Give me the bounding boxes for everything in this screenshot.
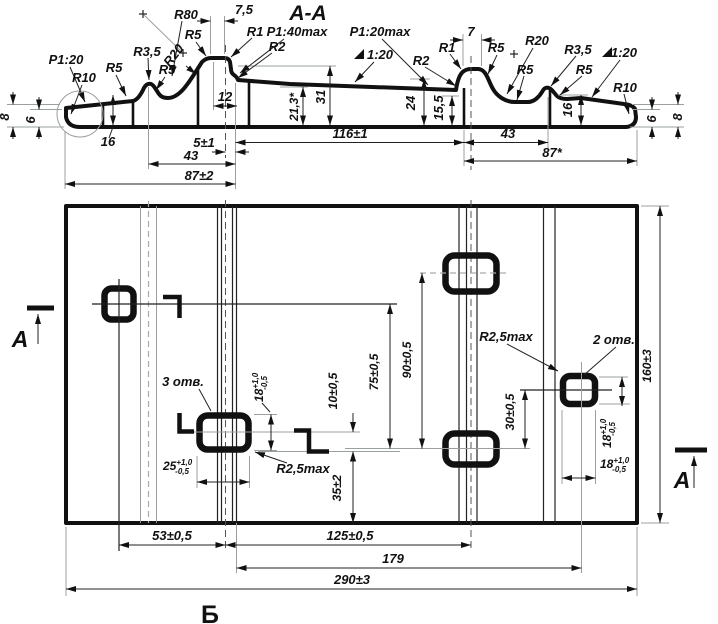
rail-plate-drawing: A-AR807,5R5R1P1:40maxR2R3,5R20R5R5P1:20R… bbox=[0, 0, 718, 624]
dim-18-tol-right-h: 18+1,0-0,5 bbox=[600, 456, 630, 474]
drawing-canvas: A-AR807,5R5R1P1:40maxR2R3,5R20R5R5P1:20R… bbox=[0, 0, 718, 624]
dim-8-right: 8 bbox=[670, 113, 685, 121]
dim-r20-right: R20 bbox=[525, 33, 550, 48]
dim-75pm05: 75±0,5 bbox=[367, 353, 381, 390]
dim-18-tol-right-v: 18+1,0-0,5 bbox=[599, 418, 617, 448]
plate-outline bbox=[66, 206, 637, 523]
dim-slope-right-mark: 1:20 bbox=[611, 45, 638, 60]
dim-slope-left-mark: 1:20 bbox=[367, 47, 394, 62]
dim-r2-5max-right: R2,5max bbox=[479, 329, 533, 344]
dim-7-5: 7,5 bbox=[235, 2, 254, 17]
dim-r1-left: R1 bbox=[247, 24, 264, 39]
dim-16-right: 16 bbox=[560, 102, 575, 117]
dim-r1-right: R1 bbox=[439, 40, 456, 55]
dim-slope-1-20max: P1:20max bbox=[350, 24, 411, 39]
dim-24: 24 bbox=[403, 95, 418, 111]
slope-triangle-icon bbox=[354, 49, 364, 59]
break-mark bbox=[163, 297, 180, 318]
dim-87pm2: 87±2 bbox=[185, 168, 215, 183]
dim-r2-left: R2 bbox=[269, 39, 286, 54]
dim-90pm05: 90±0,5 bbox=[400, 341, 414, 378]
dim-125pm05: 125±0,5 bbox=[327, 528, 375, 543]
cut-mark-left bbox=[27, 308, 54, 344]
dim-slope-1-40max: P1:40max bbox=[267, 24, 328, 39]
dim-r2-right: R2 bbox=[413, 53, 430, 68]
cut-letter-a-right: A bbox=[673, 467, 691, 493]
dim-7: 7 bbox=[467, 24, 475, 39]
dim-6-left: 6 bbox=[23, 116, 38, 124]
dim-r5-left-bump: R5 bbox=[159, 62, 176, 77]
dim-r5-dip: R5 bbox=[517, 62, 534, 77]
dim-r2-5max-center: R2,5max bbox=[276, 461, 330, 476]
dim-r10-left: R10 bbox=[72, 70, 97, 85]
dim-r5-left-outer: R5 bbox=[106, 60, 123, 75]
dim-r10-right: R10 bbox=[613, 80, 638, 95]
note-2-holes: 2 отв. bbox=[592, 332, 635, 347]
dim-35pm2: 35±2 bbox=[330, 474, 344, 501]
plan-leader-lines bbox=[109, 138, 616, 463]
dim-r5-peak-left: R5 bbox=[185, 27, 202, 42]
break-mark bbox=[294, 431, 329, 452]
detail-circle bbox=[57, 91, 103, 137]
dim-r80: R80 bbox=[174, 7, 199, 22]
dim-30pm05: 30±0,5 bbox=[503, 393, 517, 430]
dim-6-right: 6 bbox=[644, 115, 659, 123]
dim-25-tol: 25+1,0-0,5 bbox=[162, 458, 193, 476]
dim-31: 31 bbox=[313, 90, 328, 104]
dim-r5-right-bump: R5 bbox=[576, 62, 593, 77]
dim-12: 12 bbox=[218, 89, 233, 104]
dim-290pm3: 290±3 bbox=[333, 572, 371, 587]
dim-179: 179 bbox=[382, 551, 404, 566]
dim-r3-5-left: R3,5 bbox=[133, 44, 161, 59]
dim-r5-hump-right: R5 bbox=[488, 40, 505, 55]
view-letter-b: Б bbox=[201, 601, 219, 624]
dim-53pm05: 53±0,5 bbox=[152, 528, 192, 543]
dim-slope-1-20-left: P1:20 bbox=[49, 52, 84, 67]
dim-160pm3: 160±3 bbox=[640, 349, 654, 383]
note-3-holes: 3 отв. bbox=[162, 374, 204, 389]
dim-r3-5-right: R3,5 bbox=[564, 42, 592, 57]
dim-15-5: 15,5 bbox=[431, 95, 446, 121]
break-mark bbox=[180, 413, 195, 432]
dim-87-ref: 87* bbox=[542, 145, 562, 160]
dim-43-right: 43 bbox=[500, 126, 516, 141]
dim-116pm1: 116±1 bbox=[332, 126, 367, 141]
dim-21-3: 21,3* bbox=[287, 92, 301, 122]
dim-43-left: 43 bbox=[183, 148, 199, 163]
dim-8-left: 8 bbox=[0, 113, 12, 121]
section-title: A-A bbox=[288, 2, 326, 25]
cut-letter-a-left: A bbox=[11, 326, 29, 352]
dim-18-tol-center: 18+1,0-0,5 bbox=[251, 372, 269, 402]
section-view-AA bbox=[7, 10, 684, 189]
dim-10pm05: 10±0,5 bbox=[326, 372, 340, 409]
dim-16-left: 16 bbox=[101, 134, 116, 149]
